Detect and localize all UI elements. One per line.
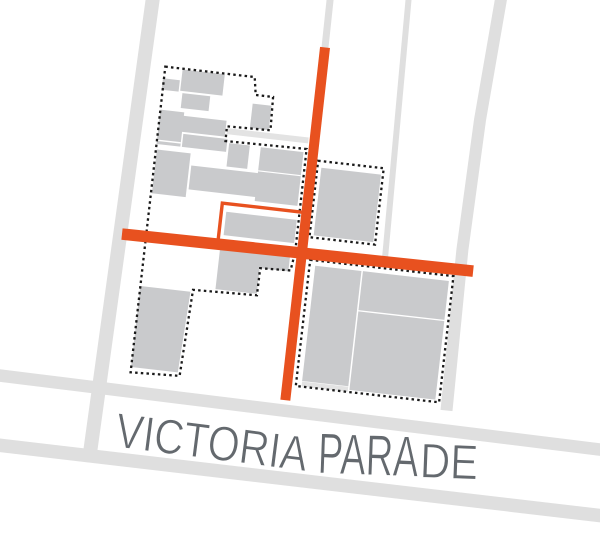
svg-text:DE: DE [419, 434, 479, 490]
svg-text:PARA: PARA [317, 422, 420, 490]
